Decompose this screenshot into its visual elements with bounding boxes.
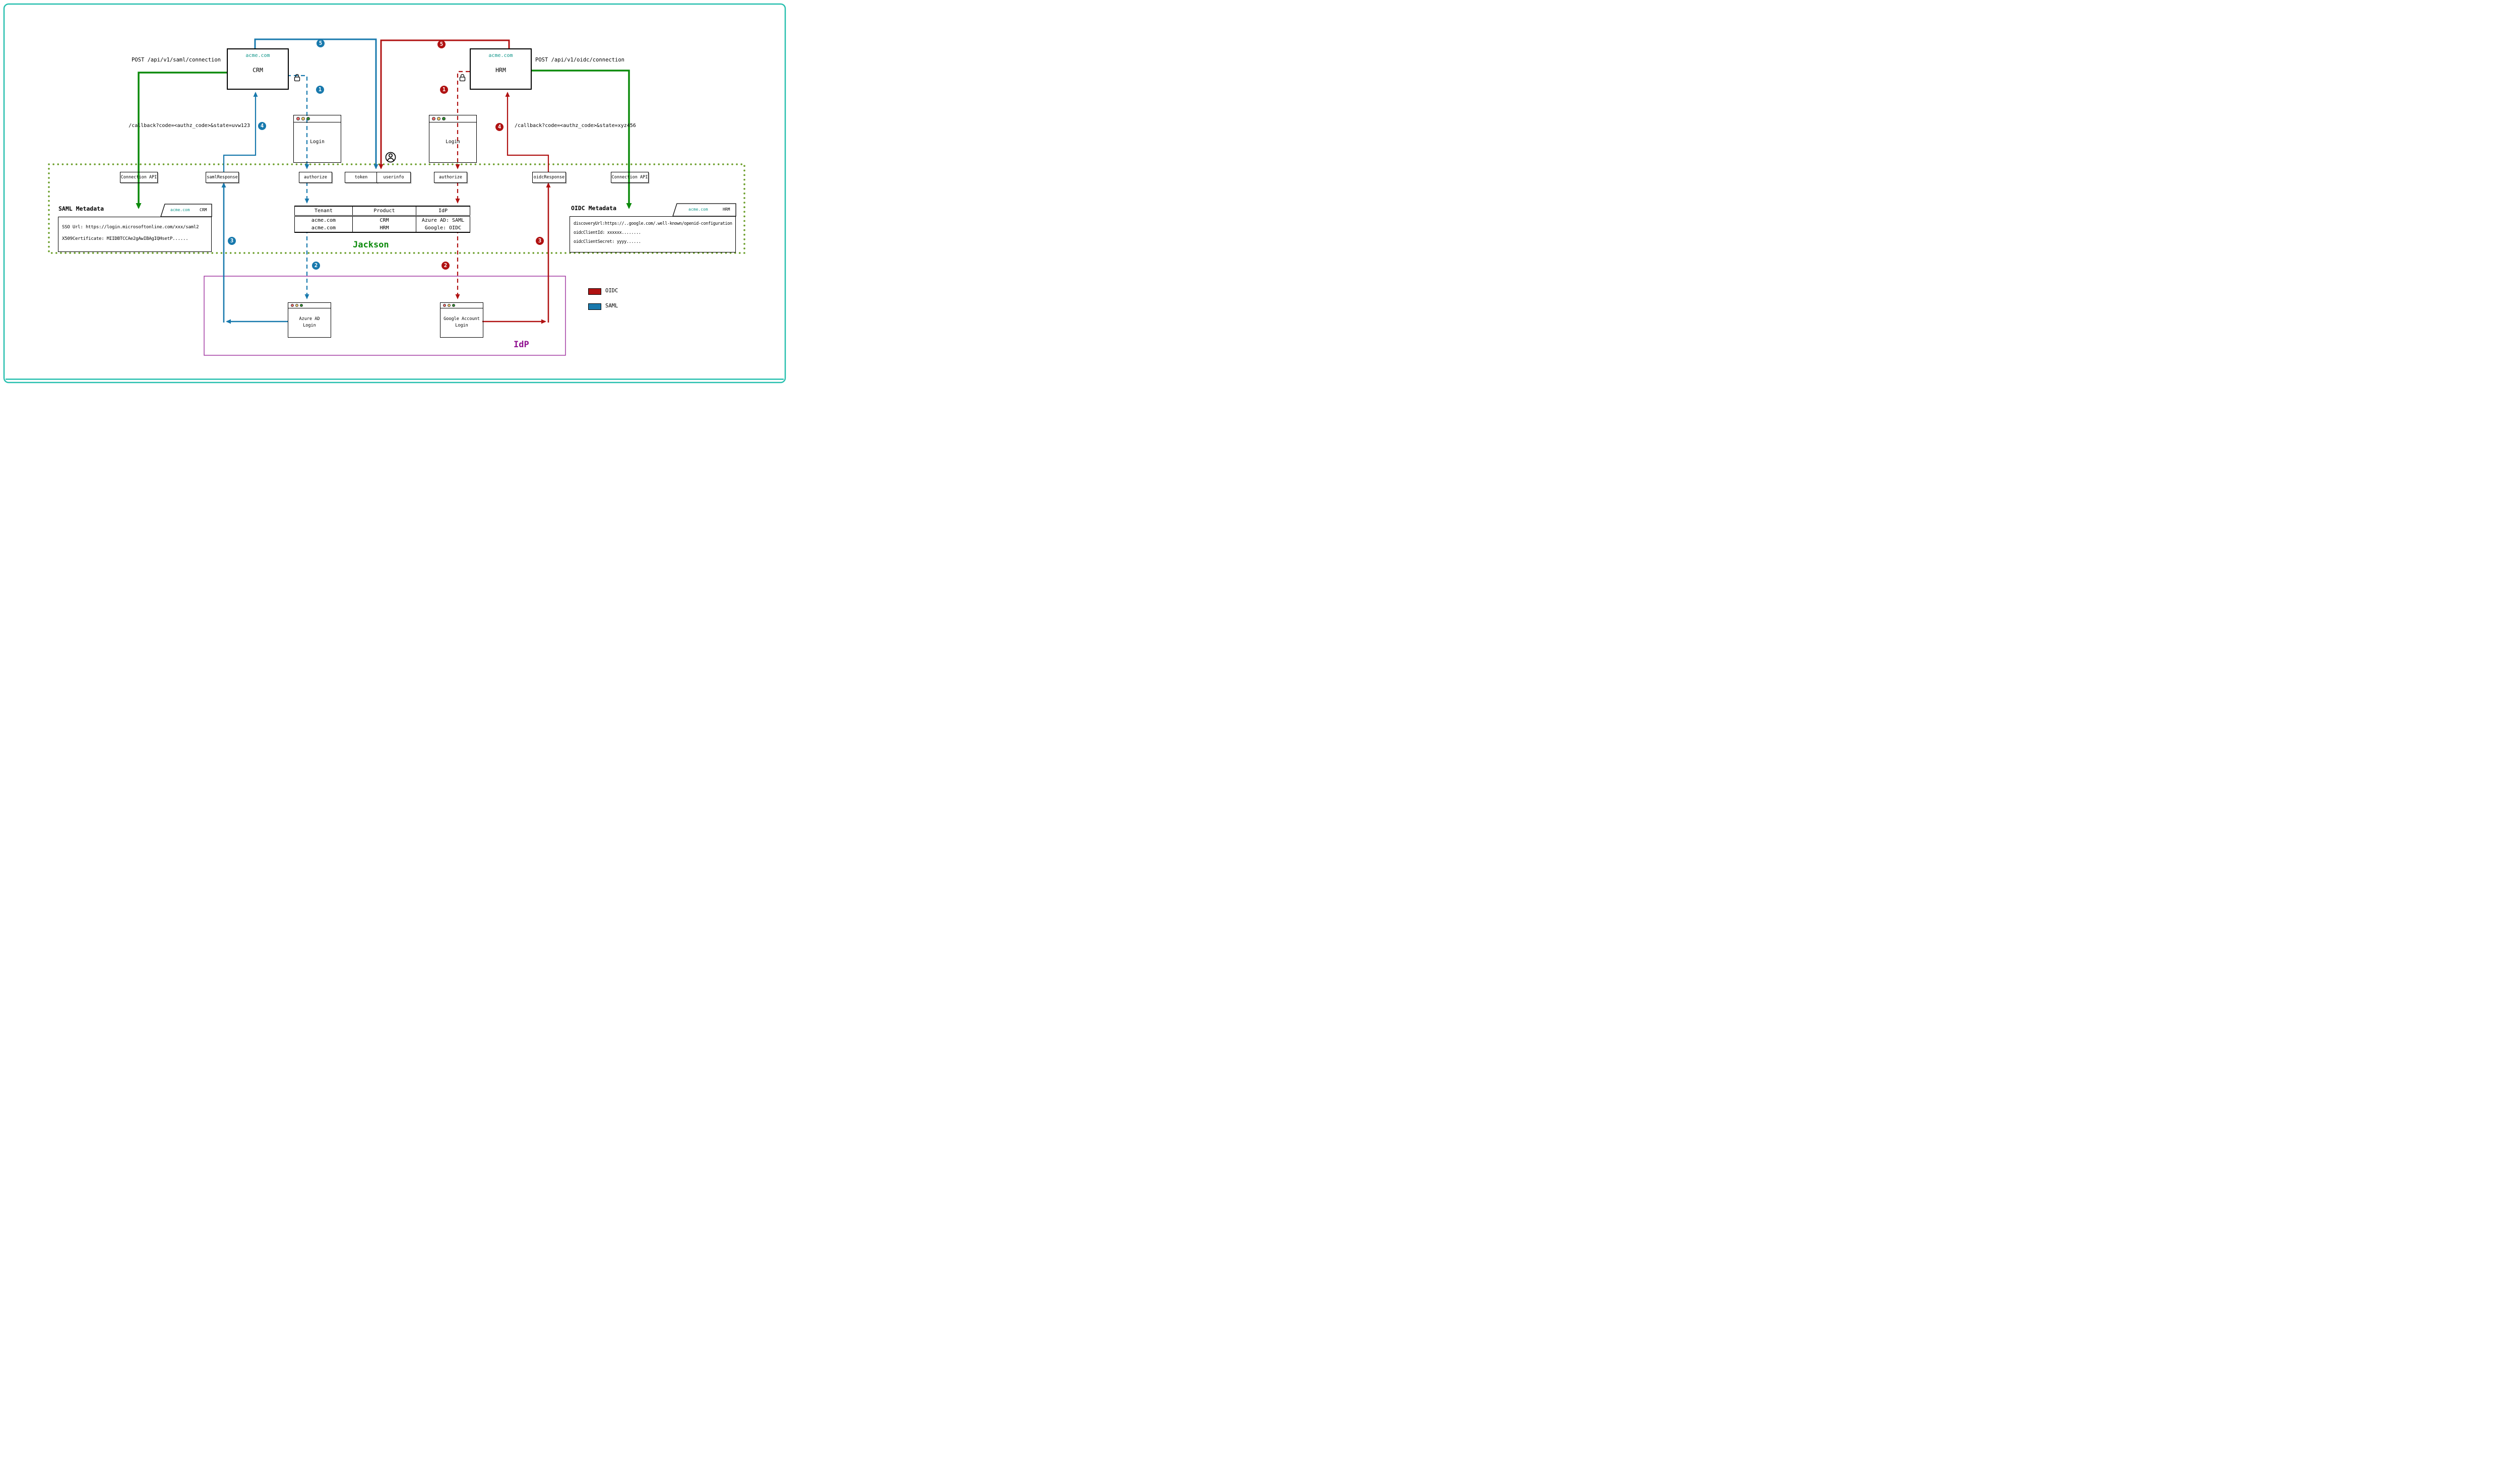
cell-idp-2: Google: OIDC — [416, 224, 470, 232]
cell-product-1: CRM — [353, 216, 416, 225]
oidc-connection-path — [530, 71, 629, 208]
endpoint-connection-api-left: Connection API — [120, 172, 158, 183]
table-row: acme.com HRM Google: OIDC — [295, 224, 470, 232]
col-product: Product — [353, 206, 416, 216]
hrm-app-box: acme.com HRM — [470, 48, 532, 90]
minimize-icon — [437, 117, 440, 120]
step-1-oidc: 1 — [440, 86, 448, 94]
step-2-oidc: 2 — [442, 262, 450, 270]
cell-tenant-1: acme.com — [295, 216, 353, 225]
saml-metadata-box: SSO Url: https://login.microsoftonline.c… — [58, 217, 212, 252]
col-tenant: Tenant — [295, 206, 353, 216]
crm-app-box: acme.com CRM — [227, 48, 289, 90]
crm-login-window: Login — [293, 115, 341, 163]
saml-metadata-tab-domain: acme.com — [170, 208, 190, 212]
saml-callback-label: /callback?code=<authz_code>&state=uvw123 — [129, 123, 250, 129]
oidc-metadata-tab-domain: acme.com — [688, 207, 708, 212]
step-3-saml: 3 — [228, 237, 236, 245]
crm-domain: acme.com — [245, 53, 270, 58]
window-titlebar — [294, 115, 341, 122]
maximize-icon — [452, 304, 455, 307]
idp-label: IdP — [514, 340, 529, 350]
table-row: acme.com CRM Azure AD: SAML — [295, 216, 470, 225]
hrm-login-window: Login — [429, 115, 477, 163]
endpoint-token: token — [345, 172, 377, 183]
close-icon — [432, 117, 435, 120]
jackson-label: Jackson — [353, 240, 389, 250]
oidc-client-secret: oidcClientSecret: yyyy...... — [574, 239, 732, 244]
endpoint-authorize-right: authorize — [434, 172, 467, 183]
diagram-connectors — [0, 0, 789, 387]
endpoint-userinfo: userinfo — [376, 172, 411, 183]
oidc-callback-label: /callback?code=<authz_code>&state=xyz456 — [515, 123, 636, 129]
col-idp: IdP — [416, 206, 470, 216]
step-2-saml: 2 — [312, 262, 320, 270]
cell-idp-1: Azure AD: SAML — [416, 216, 470, 225]
step-5-saml: 5 — [317, 39, 325, 47]
saml-sso-url: SSO Url: https://login.microsoftonline.c… — [62, 225, 208, 230]
oidc-legend-label: OIDC — [605, 288, 618, 294]
oidc-connection-api-label: POST /api/v1/oidc/connection — [535, 57, 624, 63]
maximize-icon — [306, 117, 310, 120]
saml-callback-path — [224, 93, 256, 172]
hrm-name: HRM — [495, 67, 506, 74]
step-1-saml: 1 — [316, 86, 324, 94]
google-login-text: Google AccountLogin — [440, 308, 483, 337]
saml-connection-path — [139, 73, 227, 208]
cell-product-2: HRM — [353, 224, 416, 232]
step-3-oidc: 3 — [536, 237, 544, 245]
close-icon — [296, 117, 300, 120]
endpoint-authorize-left: authorize — [299, 172, 332, 183]
minimize-icon — [301, 117, 305, 120]
saml-x509: X509Certificate: MIIDBTCCAe2gAwIBAgIQHse… — [62, 236, 208, 241]
idp-boundary — [204, 276, 565, 355]
step-5-oidc: 5 — [437, 40, 446, 48]
saml-connection-api-label: POST /api/v1/saml/connection — [132, 57, 221, 63]
close-icon — [291, 304, 294, 307]
google-login-window: Google AccountLogin — [440, 302, 483, 338]
oidc-metadata-title: OIDC Metadata — [571, 205, 616, 212]
azure-ad-login-text: Azure ADLogin — [288, 308, 331, 337]
minimize-icon — [295, 304, 298, 307]
lock-icon-oidc — [460, 75, 465, 81]
hrm-domain: acme.com — [488, 53, 513, 58]
step-4-saml: 4 — [258, 122, 266, 130]
cell-tenant-2: acme.com — [295, 224, 353, 232]
hrm-login-text: Login — [429, 122, 476, 162]
saml-metadata-title: SAML Metadata — [58, 205, 104, 212]
minimize-icon — [448, 304, 451, 307]
saml-legend-label: SAML — [605, 303, 618, 309]
saml-metadata-tab-product: CRM — [200, 208, 207, 212]
window-titlebar — [429, 115, 476, 122]
maximize-icon — [442, 117, 446, 120]
endpoint-oidc-response: oidcResponse — [532, 172, 566, 183]
endpoint-connection-api-right: Connection API — [611, 172, 649, 183]
oidc-metadata-box: discoveryUrl:https://..google.com/.well-… — [570, 216, 736, 252]
crm-name: CRM — [253, 67, 263, 74]
azure-ad-login-window: Azure ADLogin — [288, 302, 331, 338]
sso-flow-diagram: acme.com CRM acme.com HRM POST /api/v1/s… — [0, 0, 789, 387]
crm-login-text: Login — [294, 122, 341, 162]
endpoint-saml-response: samlResponse — [206, 172, 239, 183]
close-icon — [443, 304, 446, 307]
tenant-table: Tenant Product IdP acme.com CRM Azure AD… — [294, 206, 470, 233]
user-icon — [386, 153, 396, 162]
lock-icon-saml — [295, 75, 300, 81]
oidc-metadata-tab-product: HRM — [723, 207, 730, 212]
oidc-legend-swatch — [588, 288, 601, 295]
oidc-client-id: oidcClientId: xxxxxx........ — [574, 230, 732, 235]
oidc-discovery-url: discoveryUrl:https://..google.com/.well-… — [574, 221, 732, 226]
maximize-icon — [300, 304, 303, 307]
page-frame — [4, 4, 785, 382]
table-header-row: Tenant Product IdP — [295, 206, 470, 216]
step-4-oidc: 4 — [495, 123, 503, 131]
oidc-callback-path — [508, 93, 548, 172]
saml-legend-swatch — [588, 303, 601, 310]
